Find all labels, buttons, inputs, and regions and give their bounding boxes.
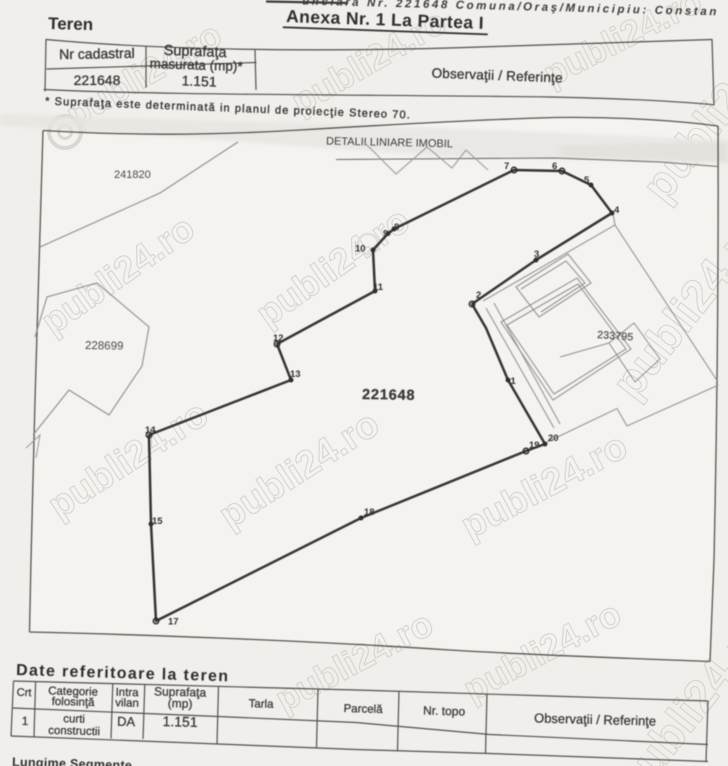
svg-text:Teren: Teren <box>48 14 94 34</box>
svg-text:241820: 241820 <box>114 169 151 181</box>
svg-text:3: 3 <box>534 249 539 260</box>
svg-text:9: 9 <box>383 229 388 240</box>
svg-text:folosinţă: folosinţă <box>52 696 96 709</box>
svg-text:14: 14 <box>145 425 156 436</box>
svg-text:vilan: vilan <box>115 697 139 710</box>
svg-text:5: 5 <box>584 175 590 186</box>
svg-text:1: 1 <box>511 376 517 387</box>
svg-text:17: 17 <box>168 617 179 628</box>
svg-text:13: 13 <box>290 369 301 380</box>
svg-text:8: 8 <box>394 222 399 233</box>
svg-text:10: 10 <box>355 244 366 255</box>
svg-text:6: 6 <box>552 161 557 172</box>
svg-text:233795: 233795 <box>597 329 634 343</box>
svg-text:15: 15 <box>152 516 163 527</box>
svg-text:18: 18 <box>364 507 375 518</box>
svg-text:1: 1 <box>22 714 29 728</box>
svg-text:Tarla: Tarla <box>248 698 274 711</box>
svg-text:19: 19 <box>529 440 540 451</box>
svg-text:DA: DA <box>117 714 136 729</box>
svg-text:221648: 221648 <box>362 387 415 404</box>
svg-text:Crt: Crt <box>17 687 32 699</box>
svg-text:2: 2 <box>476 290 481 301</box>
svg-text:Observaţii / Referinţe: Observaţii / Referinţe <box>534 710 656 728</box>
svg-text:221648: 221648 <box>74 72 121 88</box>
svg-text:Parcelă: Parcelă <box>343 703 383 716</box>
svg-text:11: 11 <box>373 282 384 293</box>
svg-text:Nr cadastral: Nr cadastral <box>59 45 135 62</box>
svg-text:1.151: 1.151 <box>162 713 198 730</box>
svg-text:1.151: 1.151 <box>181 72 217 89</box>
svg-text:12: 12 <box>273 333 284 344</box>
svg-text:228699: 228699 <box>85 340 124 353</box>
svg-text:4: 4 <box>614 205 620 216</box>
svg-text:curti: curti <box>63 713 85 726</box>
svg-text:20: 20 <box>548 433 559 444</box>
svg-text:constructii: constructii <box>48 725 100 738</box>
svg-text:7: 7 <box>504 161 509 172</box>
svg-text:Nr. topo: Nr. topo <box>423 703 466 718</box>
svg-text:(mp): (mp) <box>168 696 193 711</box>
